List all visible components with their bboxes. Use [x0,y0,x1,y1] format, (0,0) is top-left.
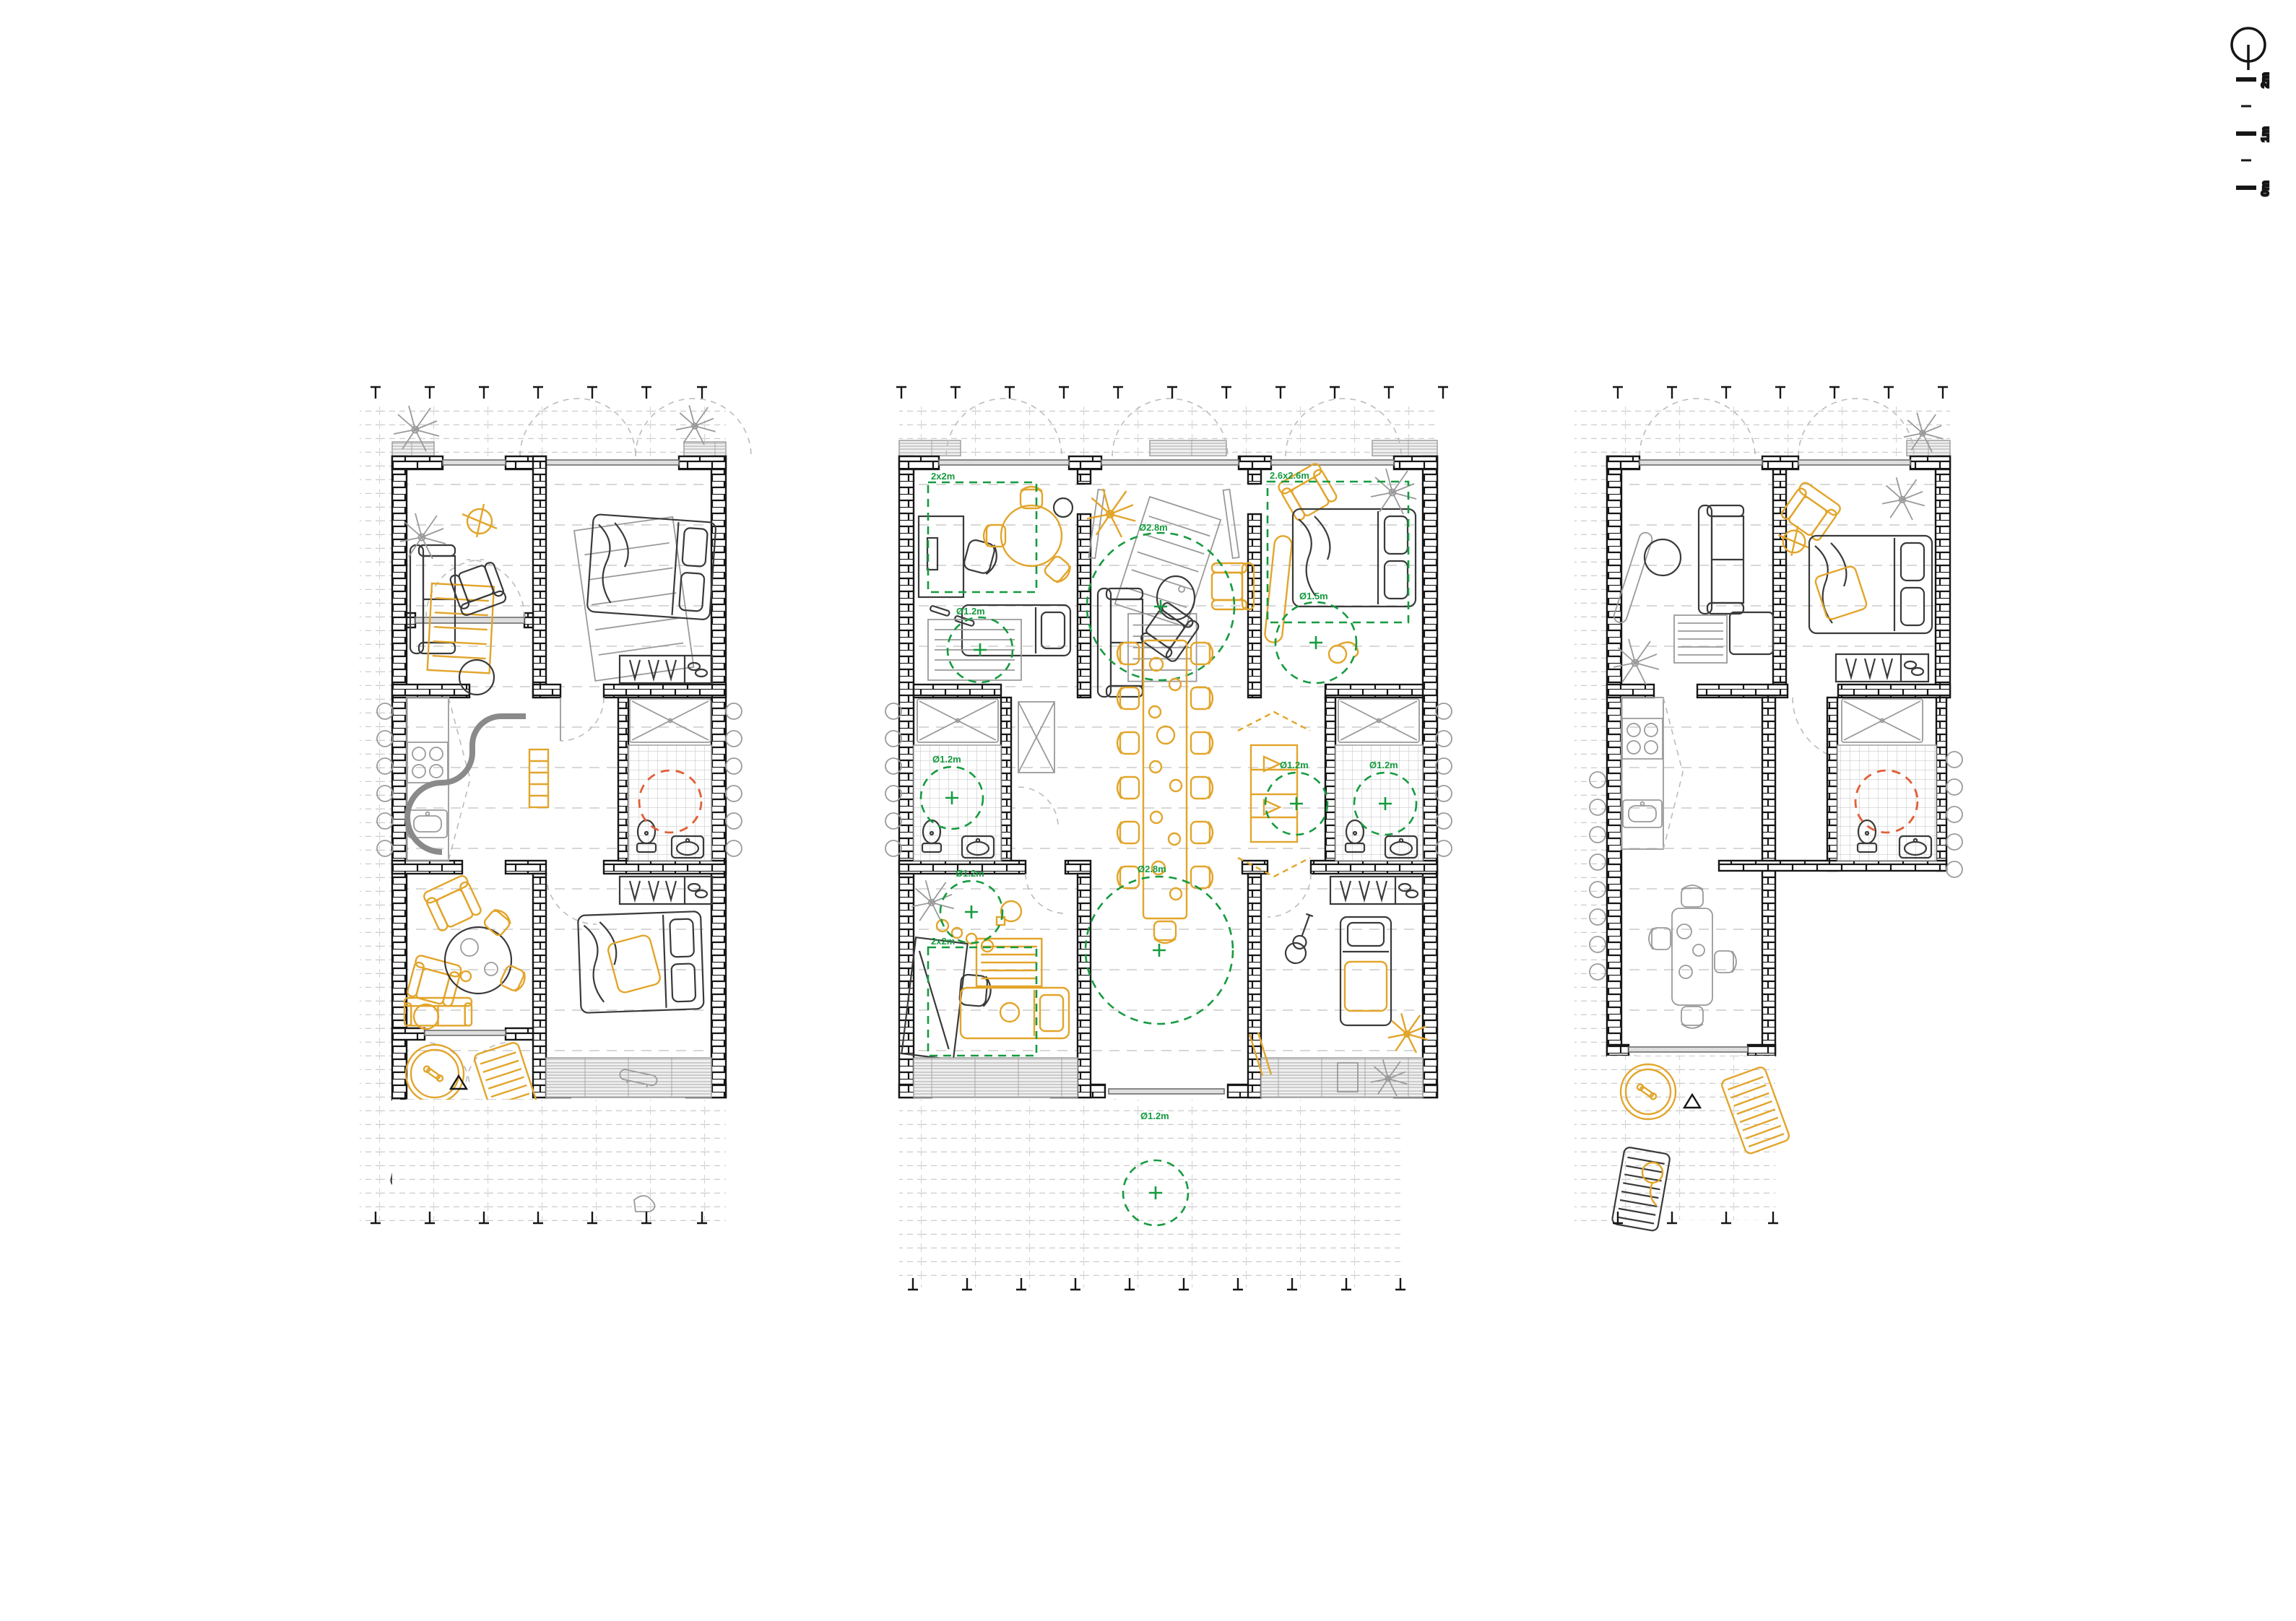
side-passage [360,401,392,1222]
dimension-label: 2.6x2.6m [1270,470,1309,481]
bathroom-wall [1001,697,1011,861]
dimension-label: Ø1.2m [932,754,961,765]
floor-plan-left-unit [360,387,751,1223]
dimension-label: Ø1.2m [1369,760,1398,770]
floor-plans-svg: 2m 1m 0m [0,0,2296,1621]
terrace [1607,1056,1775,1220]
deck-strip [546,1058,711,1098]
scale-label-0m: 0m [2259,181,2271,196]
dimension-label: Ø1.5m [1299,591,1328,601]
terrace [392,1100,726,1222]
top-balcony [392,401,726,456]
dimension-label: Ø1.2m [1280,760,1309,770]
architectural-drawing-sheet: 2m 1m 0m [0,0,2296,1621]
porch-folding-door [425,1030,506,1035]
dimension-label: Ø2.8m [1138,864,1166,874]
dimension-label: 2x2m [931,471,955,482]
terrace-folding-door [1109,1089,1224,1094]
dimension-label: 2x2m [931,936,955,947]
dimension-label: Ø1.2m [1140,1111,1169,1121]
grid-ticks-top [1613,387,1948,399]
dimension-label: Ø2.8m [1139,522,1168,533]
dimension-label: Ø1.2m [956,868,984,879]
legend: 2m 1m 0m [2232,28,2271,196]
loggia-window [415,617,524,623]
terrace-door [1629,1047,1748,1052]
scale-label-2m: 2m [2259,72,2271,88]
grid-ticks-top [371,387,707,399]
scale-label-1m: 1m [2259,126,2271,142]
partition-wall [533,456,546,697]
top-balcony [1607,401,1950,456]
scale-bar: 2m 1m 0m [2236,72,2271,196]
floor-plan-right-unit [1574,387,1962,1231]
north-arrow-icon [2232,28,2265,70]
floor-plan-middle-unit: 2x2m Ø1.2m Ø2.8m 2.6x2.6m Ø1.5m Ø1.2m Ø1… [885,387,1452,1290]
grid-ticks-top [896,387,1448,399]
dimension-label: Ø1.2m [956,606,985,617]
rug [976,939,1041,986]
bathroom-wall [1325,697,1335,861]
deck-strip [914,1058,1078,1098]
